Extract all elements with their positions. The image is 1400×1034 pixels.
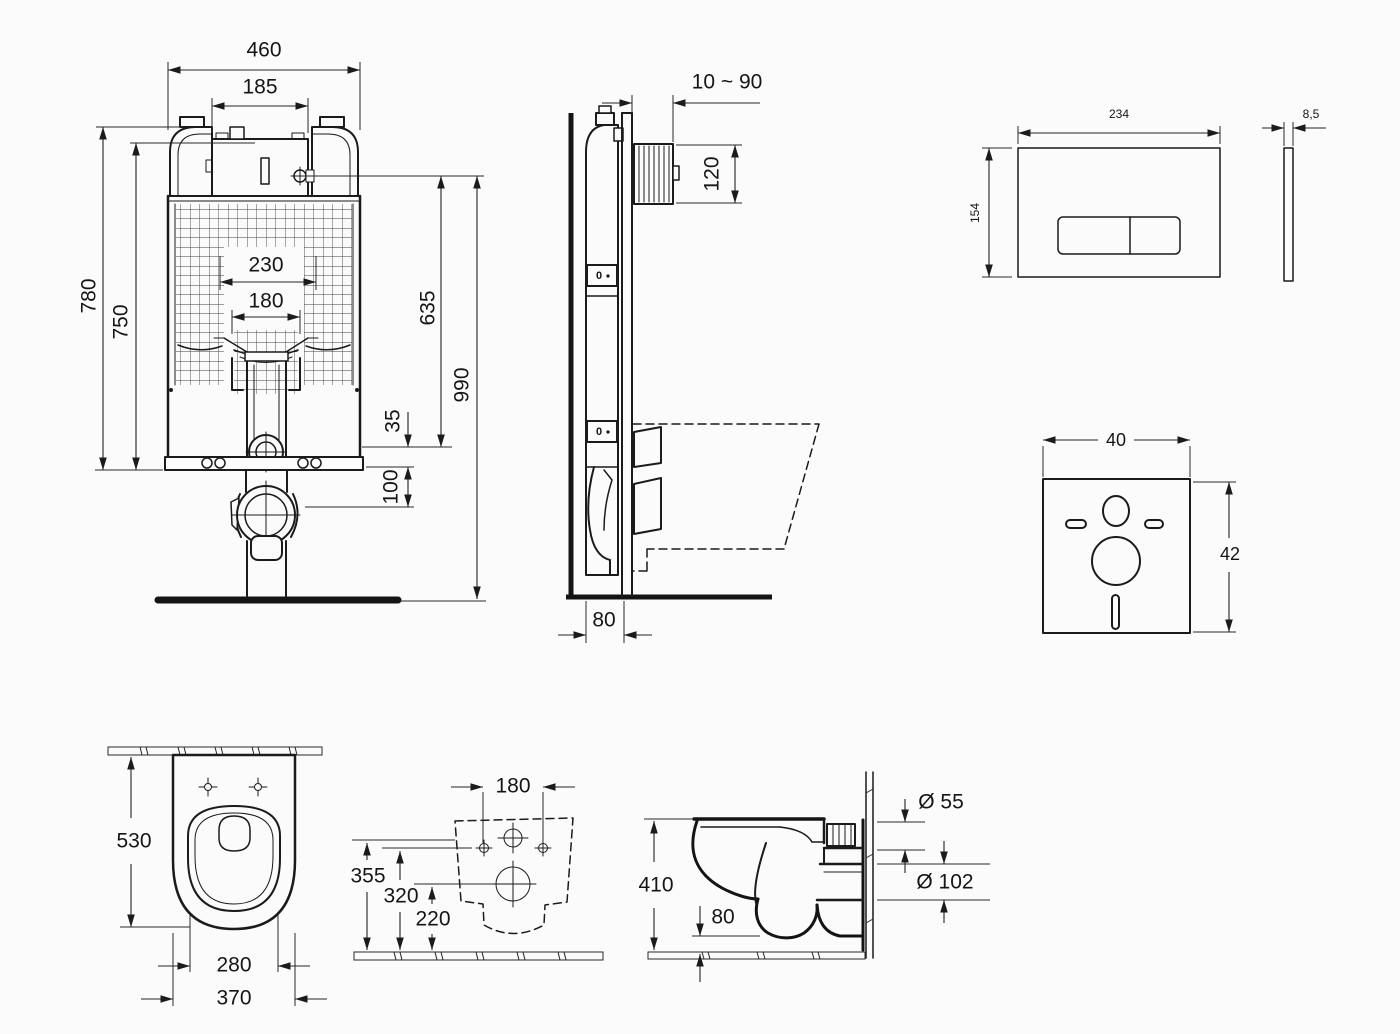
dim-hole-height-label: 320 — [383, 885, 418, 908]
cistern-tank — [168, 117, 360, 201]
dim-overall-height-label: 990 — [451, 367, 474, 402]
dim-tank-height-label: 750 — [110, 304, 133, 339]
dim-trap-clearance: 80 — [692, 906, 760, 983]
dim-outlet-diameter-label: Ø 102 — [916, 871, 973, 894]
installation-diagram: 460 185 780 750 230 18 — [0, 0, 1400, 1034]
toilet-side-view: 410 80 Ø 55 Ø 102 — [638, 772, 990, 982]
inlet-knob — [673, 166, 679, 180]
mounting-bracket — [634, 427, 661, 467]
dim-plate-height-label: 154 — [968, 203, 982, 223]
frame-front-rail — [622, 113, 632, 597]
sound-mat-view: 40 42 — [1043, 430, 1240, 633]
flush-plate-side-view: 8,5 — [1262, 107, 1326, 281]
outlet-stub — [251, 536, 282, 560]
dim-inlet-box-height-label: 120 — [701, 156, 724, 191]
sound-mat-body — [1043, 479, 1190, 633]
dim-plate-width: 234 — [1018, 107, 1220, 144]
dim-tank-access-width: 185 — [212, 76, 308, 134]
dim-frame-depth: 80 — [558, 601, 652, 643]
flush-plate-edge — [1284, 148, 1293, 281]
dim-outlet-height-label: 220 — [415, 908, 450, 931]
toilet-rear-view: 180 355 320 220 — [350, 775, 603, 961]
cistern-body-profile: 0 0 — [586, 106, 623, 575]
dim-pipe-width-label: 180 — [248, 290, 283, 313]
flush-plate-front-view: 234 154 — [968, 107, 1220, 277]
dim-bend-width-label: 230 — [248, 254, 283, 277]
dim-plate-thickness: 8,5 — [1262, 107, 1326, 146]
dim-outlet-offset-label: 100 — [380, 469, 403, 504]
dim-bend-width: 230 — [220, 254, 316, 291]
outlet-connection — [817, 905, 863, 936]
cistern-side-view: 0 0 — [558, 71, 819, 644]
dim-pipe-width: 180 — [232, 290, 300, 335]
dim-inlet-diameter-label: Ø 55 — [918, 791, 964, 814]
technical-drawing-sheet: 460 185 780 750 230 18 — [0, 0, 1400, 1034]
dim-bowl-width-label: 370 — [216, 987, 251, 1010]
dim-mat-height: 42 — [1193, 482, 1240, 632]
dim-valve-height-label: 635 — [417, 290, 440, 325]
indicator-window-label: 0 — [596, 270, 602, 282]
wall-strip — [866, 772, 873, 958]
frame-bottom-bar — [165, 457, 363, 470]
dim-bowl-height-label: 410 — [638, 874, 673, 897]
toilet-top-view: 530 280 370 — [108, 747, 327, 1010]
dim-inlet-diameter: Ø 55 — [877, 791, 964, 874]
tank-shoulder — [312, 127, 358, 196]
dim-overall-height: 990 — [400, 176, 486, 601]
corrugated-inlet-box — [634, 144, 679, 204]
dim-frame-height-label: 780 — [78, 278, 101, 313]
dim-plate-width-label: 234 — [1109, 107, 1129, 121]
flush-plate-body — [1018, 148, 1220, 277]
dim-mat-width-label: 40 — [1106, 430, 1126, 450]
dim-trap-clearance-label: 80 — [711, 906, 734, 929]
inlet-hole-mark — [498, 823, 528, 853]
access-panel — [212, 139, 308, 196]
dim-total-width-label: 460 — [246, 39, 281, 62]
dim-plate-height: 154 — [968, 148, 1012, 277]
flush-pipe — [214, 338, 318, 472]
dim-hole-spacing-label: 180 — [495, 775, 530, 798]
indicator-window: 0 — [587, 265, 617, 286]
cistern-front-view: 460 185 780 750 230 18 — [78, 39, 487, 602]
dim-hole-height: 320 — [382, 848, 472, 950]
dim-wall-offset-range: 10 ~ 90 — [602, 71, 762, 143]
indicator-window-label: 0 — [596, 426, 602, 438]
dim-outlet-height: 220 — [414, 884, 492, 950]
panel-slot — [261, 158, 269, 184]
dim-inlet-box-height: 120 — [676, 145, 742, 203]
tank-lug — [180, 117, 204, 127]
dim-mat-height-label: 42 — [1220, 544, 1240, 564]
dim-plate-thickness-label: 8,5 — [1303, 107, 1320, 121]
dim-seat-width-label: 280 — [216, 954, 251, 977]
floor-strip — [648, 952, 865, 959]
bowl-section-profile — [693, 819, 863, 950]
tank-lug — [320, 117, 344, 127]
fill-valve-nub — [230, 127, 244, 139]
dim-bowl-depth-label: 530 — [116, 830, 151, 853]
floor-strip — [354, 952, 603, 960]
dim-outlet-diameter: Ø 102 — [877, 841, 990, 923]
indicator-window: 0 — [587, 421, 617, 442]
dim-valve-offset: 35 — [362, 409, 452, 467]
dim-mat-width: 40 — [1043, 430, 1190, 477]
outlet-hole-mark — [490, 861, 536, 907]
dim-rim-height-label: 355 — [350, 865, 385, 888]
dim-valve-offset-label: 35 — [382, 409, 405, 432]
rear-dashed-outline — [455, 818, 573, 934]
drain-water-area — [219, 816, 250, 851]
dim-tank-access-width-label: 185 — [242, 76, 277, 99]
dim-frame-depth-label: 80 — [592, 609, 615, 632]
mounting-bracket — [634, 478, 661, 534]
bolt-hole-mark — [476, 840, 492, 856]
dim-wall-offset-range-label: 10 ~ 90 — [692, 71, 763, 94]
drain-elbow — [231, 470, 300, 596]
dim-bowl-height: 410 — [638, 819, 692, 950]
dim-outlet-offset: 100 — [305, 467, 414, 507]
